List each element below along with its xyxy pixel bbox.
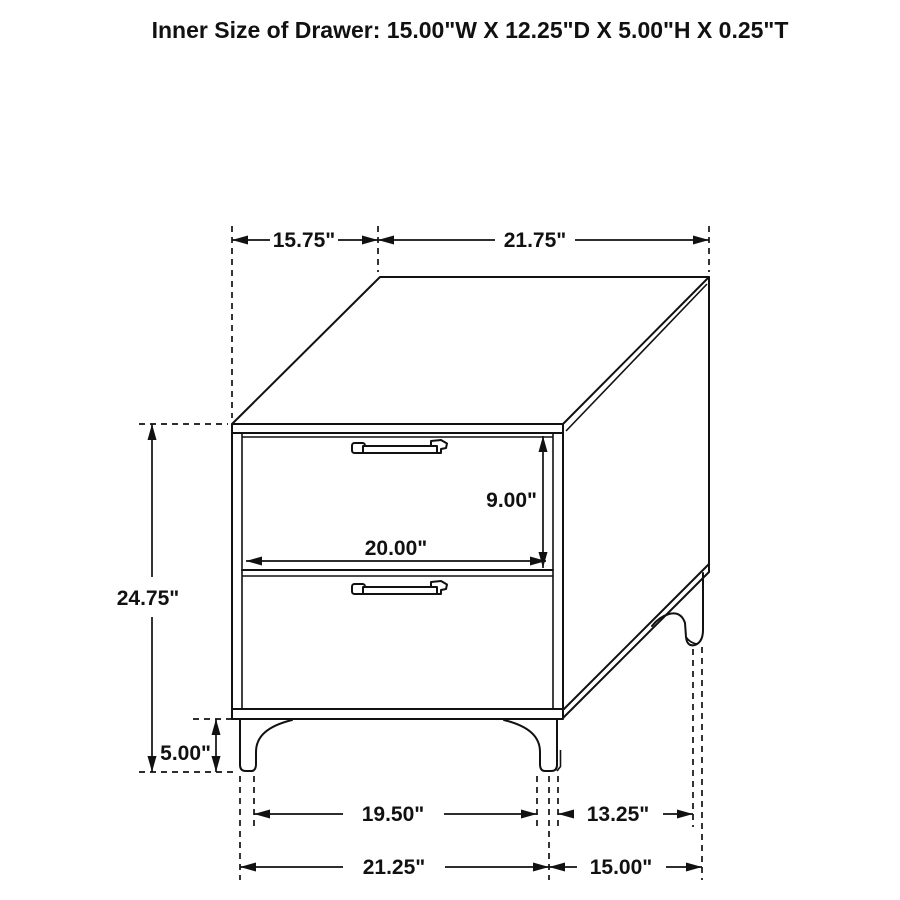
top-drawer-handle (352, 440, 447, 453)
dimension-front-feet-outer: 21.25" (240, 856, 549, 879)
dimension-drawer-height: 9.00" (486, 436, 547, 568)
dimension-side-feet-outer: 15.00" (549, 856, 702, 879)
overall-height-label: 24.75" (117, 587, 180, 610)
drawer-height-label: 9.00" (486, 489, 537, 512)
back-right-leg (652, 573, 703, 645)
diagram-title: Inner Size of Drawer: 15.00"W X 12.25"D … (152, 17, 789, 43)
dimension-drawer-width: 20.00" (246, 537, 546, 566)
nightstand-dimension-diagram: Inner Size of Drawer: 15.00"W X 12.25"D … (0, 0, 900, 900)
leg-height-label: 5.00" (160, 742, 211, 765)
side-feet-outer-label: 15.00" (590, 856, 653, 879)
dimension-front-feet-inner: 19.50" (254, 803, 537, 826)
top-face (232, 277, 709, 424)
dimension-top-width: 21.75" (378, 229, 709, 252)
dimension-leg-height: 5.00" (160, 719, 236, 772)
top-depth-label: 15.75" (273, 229, 336, 252)
dimension-diagram-page: Inner Size of Drawer: 15.00"W X 12.25"D … (0, 0, 900, 900)
top-width-label: 21.75" (504, 229, 567, 252)
nightstand-drawing (232, 277, 709, 771)
bottom-drawer-handle (352, 581, 447, 594)
front-right-leg (504, 719, 557, 771)
front-left-leg (240, 719, 292, 771)
dimension-top-depth: 15.75" (232, 229, 378, 252)
dimension-side-feet-inner: 13.25" (558, 803, 693, 826)
side-feet-inner-label: 13.25" (587, 803, 650, 826)
front-feet-outer-label: 21.25" (363, 856, 426, 879)
drawer-width-label: 20.00" (365, 537, 428, 560)
front-feet-inner-label: 19.50" (362, 803, 425, 826)
